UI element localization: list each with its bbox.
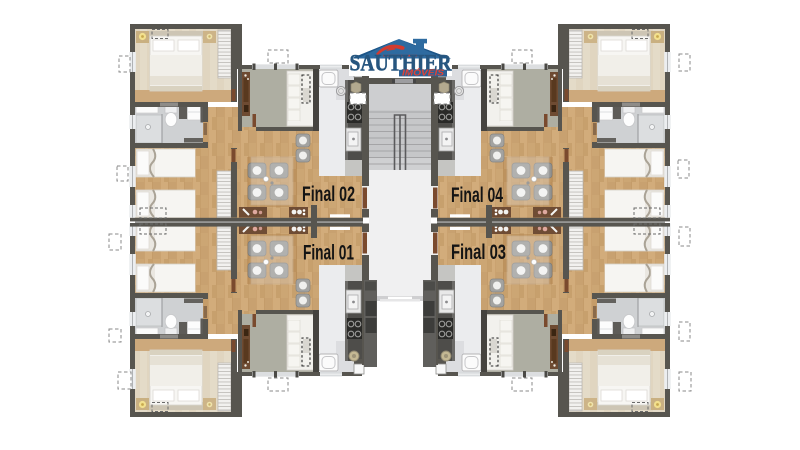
svg-text:Final 03: Final 03 [451, 241, 506, 264]
svg-text:IMÓVEIS: IMÓVEIS [402, 69, 445, 78]
svg-text:Final 04: Final 04 [451, 184, 503, 207]
svg-text:Final 01: Final 01 [303, 242, 354, 265]
svg-text:Final 02: Final 02 [302, 183, 355, 206]
